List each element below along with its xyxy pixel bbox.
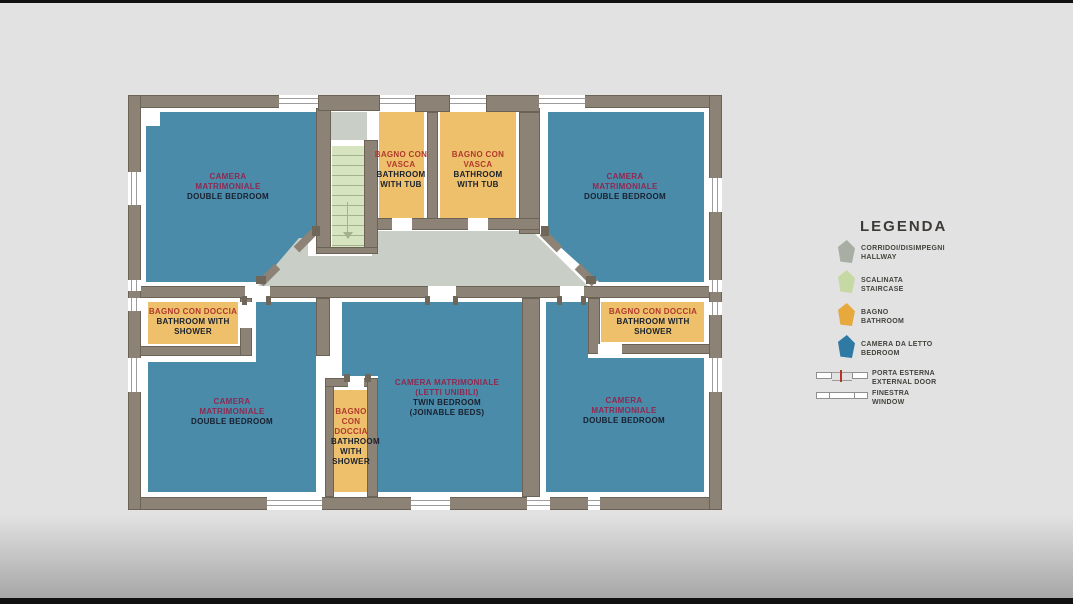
stair-down-arrow-icon (343, 232, 353, 239)
stair-direction-line (347, 202, 348, 234)
wall (140, 346, 252, 356)
legend-item-bathroom: BAGNO BATHROOM (861, 308, 904, 326)
external-door-symbol (816, 370, 868, 382)
wall (415, 95, 450, 112)
legend-item-external-door: PORTA ESTERNA EXTERNAL DOOR (872, 369, 936, 387)
door-opening (428, 286, 456, 298)
wall (316, 247, 378, 254)
window-marker (588, 497, 600, 510)
window-marker (128, 358, 141, 392)
legend-swatch-bathroom (838, 303, 855, 326)
door-jamb (425, 296, 430, 305)
legend: LEGENDA CORRIDOI/DISIMPEGNI HALLWAY SCAL… (815, 218, 1065, 418)
door-jamb (581, 296, 586, 305)
window-marker (128, 172, 141, 205)
legend-swatch-hallway (838, 240, 855, 263)
window-marker (539, 95, 585, 108)
door-opening (392, 218, 412, 230)
legend-item-staircase: SCALINATA STAIRCASE (861, 276, 904, 294)
label-bath-shower-left: BAGNO CON DOCCIA BATHROOM WITH SHOWER (148, 307, 238, 337)
label-bedroom-bottom-right: CAMERA MATRIMONIALE DOUBLE BEDROOM (564, 396, 684, 426)
window-marker (709, 358, 722, 392)
door-jamb (557, 296, 562, 305)
stair-landing (331, 112, 367, 140)
window-marker (128, 298, 141, 311)
legend-swatch-bedroom (838, 335, 855, 358)
label-bedroom-top-left: CAMERA MATRIMONIALE DOUBLE BEDROOM (168, 172, 288, 202)
label-bedroom-bottom-left: CAMERA MATRIMONIALE DOUBLE BEDROOM (172, 397, 292, 427)
label-bath-tub-right: BAGNO CON VASCA BATHROOM WITH TUB (448, 150, 508, 190)
wall (519, 112, 540, 234)
wall (316, 298, 330, 356)
door-wall-segment (852, 372, 868, 379)
window-wall-segment (854, 392, 868, 399)
door-jamb (312, 226, 320, 236)
legend-title: LEGENDA (860, 218, 947, 235)
label-bath-shower-right: BAGNO CON DOCCIA BATHROOM WITH SHOWER (608, 307, 698, 337)
window-glass (830, 392, 854, 399)
door-jamb (453, 296, 458, 305)
label-bath-tub-left: BAGNO CON VASCA BATHROOM WITH TUB (371, 150, 431, 190)
door-jamb (541, 226, 549, 236)
door-jamb (344, 374, 350, 382)
legend-swatch-staircase (838, 270, 855, 293)
window-marker (128, 280, 141, 291)
legend-item-window: FINESTRA WINDOW (872, 389, 909, 407)
window-marker (380, 95, 415, 108)
label-bedroom-top-right: CAMERA MATRIMONIALE DOUBLE BEDROOM (565, 172, 685, 202)
window-marker (709, 280, 722, 292)
door-opening (348, 378, 364, 387)
floor-plan-page: CAMERA MATRIMONIALE DOUBLE BEDROOM CAMER… (0, 0, 1073, 604)
window-wall-segment (816, 392, 830, 399)
bottom-gradient (0, 515, 1073, 598)
legend-item-hallway: CORRIDOI/DISIMPEGNI HALLWAY (861, 244, 945, 262)
door-wall-segment (816, 372, 832, 379)
window-marker (450, 95, 486, 108)
door-jamb (365, 374, 371, 382)
door-opening (240, 302, 252, 328)
door-jamb (586, 276, 596, 284)
door-frame-lines (832, 372, 852, 381)
wall (522, 298, 540, 497)
legend-item-bedroom: CAMERA DA LETTO BEDROOM (861, 340, 933, 358)
door-opening (468, 218, 488, 230)
window-marker (279, 95, 318, 108)
door-jamb (266, 296, 271, 305)
window-marker (411, 497, 450, 510)
door-red-tick (840, 370, 842, 382)
label-twin-bedroom: CAMERA MATRIMONIALE (LETTI UNIBILI) TWIN… (387, 378, 507, 418)
door-jamb (256, 276, 266, 284)
window-marker (709, 178, 722, 212)
frame-bottom-bar (0, 598, 1073, 604)
label-bath-shower-center: BAGNO CON DOCCIA BATHROOM WITH SHOWER (331, 407, 371, 467)
frame-top-bar (0, 0, 1073, 3)
window-marker (267, 497, 322, 510)
door-opening (598, 344, 622, 354)
window-symbol (816, 390, 868, 402)
window-marker (709, 302, 722, 315)
wall (486, 95, 540, 112)
door-jamb (242, 296, 247, 305)
window-marker (527, 497, 550, 510)
wall (318, 95, 380, 111)
